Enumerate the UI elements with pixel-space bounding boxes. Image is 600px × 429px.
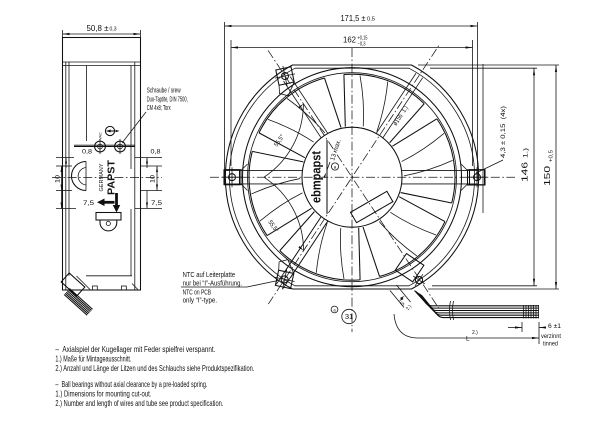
svg-text:171,5 ±: 171,5 ± — [341, 14, 367, 23]
svg-text:GERMANY: GERMANY — [99, 163, 105, 191]
svg-text:VAC: VAC — [99, 132, 103, 140]
svg-text:NTC on PCB: NTC on PCB — [183, 290, 212, 297]
svg-text:only “I”-type.: only “I”-type. — [183, 298, 218, 305]
svg-text:L: L — [466, 336, 470, 343]
svg-text:0,8: 0,8 — [82, 149, 92, 156]
svg-text:– Ball bearings without axial: – Ball bearings without axial clearance … — [55, 380, 207, 389]
svg-text:6 ±1: 6 ±1 — [548, 324, 562, 330]
svg-text:7,5: 7,5 — [83, 200, 94, 207]
svg-text:Schraube / srew: Schraube / srew — [147, 88, 182, 95]
svg-text:+0,5: +0,5 — [549, 150, 555, 162]
svg-text:2.): 2.) — [472, 330, 478, 336]
svg-text:146: 146 — [520, 161, 530, 182]
svg-text:50,8 ±: 50,8 ± — [87, 24, 110, 33]
svg-text:1.) Dimensions for mounting cu: 1.) Dimensions for mounting cut-out. — [55, 390, 151, 399]
svg-text:10: 10 — [55, 175, 62, 183]
svg-text:0,3: 0,3 — [110, 27, 117, 33]
svg-text:– Axialspiel der Kugellager m: – Axialspiel der Kugellager mit Feder sp… — [55, 345, 215, 354]
svg-text:tinned: tinned — [543, 342, 558, 348]
svg-text:162: 162 — [343, 36, 356, 45]
svg-text:0,8: 0,8 — [151, 149, 161, 156]
svg-text:verzinnt: verzinnt — [541, 334, 561, 340]
svg-text:CM 4x8; Torx: CM 4x8; Torx — [147, 105, 171, 112]
svg-text:7,5: 7,5 — [151, 200, 162, 207]
svg-text:PAPST: PAPST — [106, 159, 118, 195]
svg-text:1.) Maße für Mintageausschnitt: 1.) Maße für Mintageausschnitt. — [55, 355, 131, 364]
svg-text:ebmpapst: ebmpapst — [309, 150, 324, 203]
svg-text:10: 10 — [150, 175, 157, 183]
svg-text:2.) Number and length of wires: 2.) Number and length of wires and tube … — [55, 399, 223, 408]
svg-text:1.): 1.) — [524, 148, 530, 158]
svg-text:0,5: 0,5 — [367, 17, 375, 23]
svg-text:4,3 ± 0,15 (4x): 4,3 ± 0,15 (4x) — [500, 106, 507, 158]
svg-text:150: 150 — [542, 165, 552, 186]
svg-text:Duo-Taptite, DIN 7500,: Duo-Taptite, DIN 7500, — [147, 97, 188, 104]
svg-text:−0,3: −0,3 — [358, 42, 366, 48]
svg-text:nur bei “I”-Ausführung.: nur bei “I”-Ausführung. — [183, 281, 243, 288]
svg-text:2.) Anzahl und Länge der Litze: 2.) Anzahl und Länge der Litzen und des … — [55, 364, 254, 373]
svg-text:31: 31 — [345, 312, 353, 321]
svg-text:NTC auf Leiterplatte: NTC auf Leiterplatte — [183, 272, 236, 279]
